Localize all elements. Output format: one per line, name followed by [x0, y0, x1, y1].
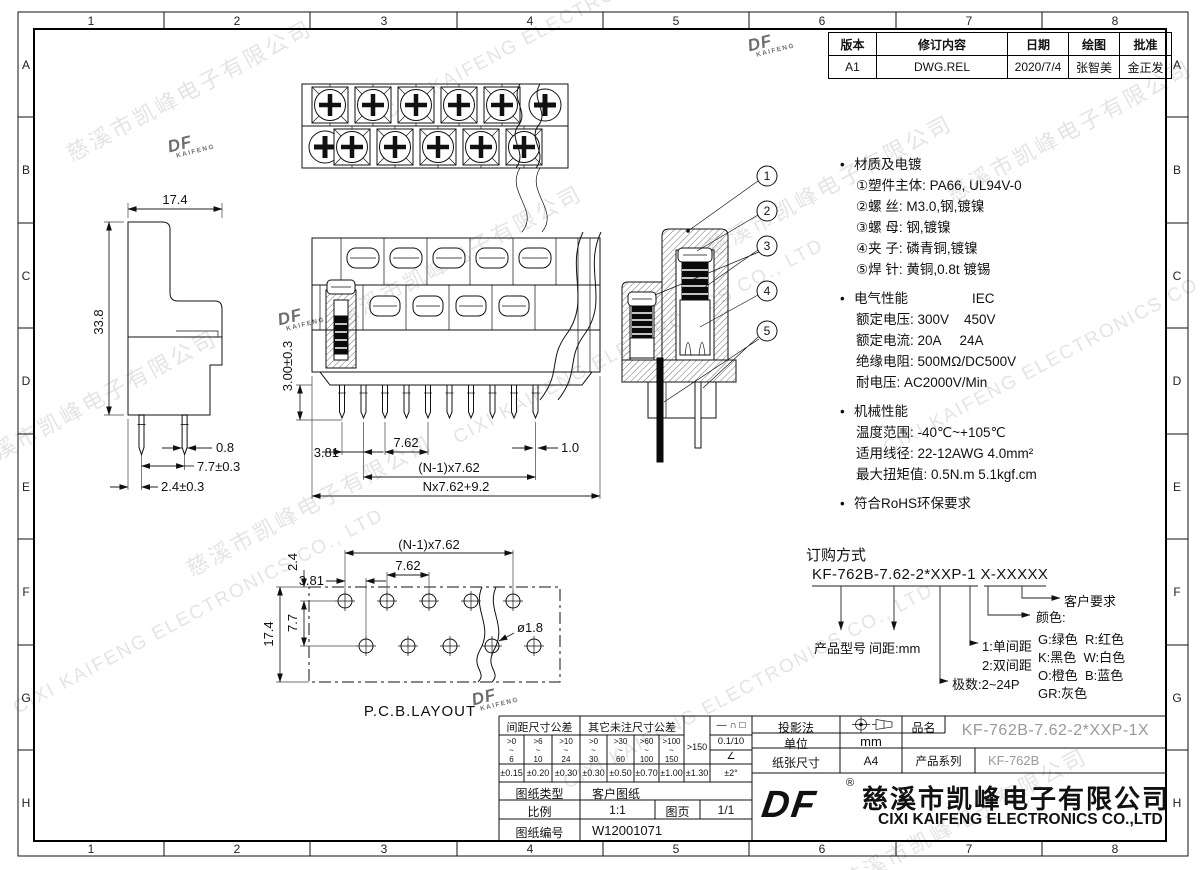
svg-text:3: 3: [381, 14, 388, 28]
bullet-icon: •: [840, 493, 854, 514]
revision-date: 2020/7/4: [1008, 56, 1069, 79]
revision-header: 绘图: [1069, 33, 1120, 56]
svg-text:1: 1: [88, 842, 95, 856]
dim-label: 17.4: [261, 621, 276, 646]
front-view: 3.81 7.62 1.0 (N-1)x7.62 Nx7.62+9.2 3.00…: [280, 232, 601, 499]
dim-label: (N-1)x7.62: [418, 460, 479, 475]
scale-value: 1:1: [580, 803, 655, 817]
svg-text:6: 6: [819, 842, 826, 856]
projection-symbol: [852, 716, 892, 733]
tol-symbols: — ∩ □: [710, 720, 752, 731]
revision-header: 批准: [1120, 33, 1172, 56]
dim-label: 3.81: [314, 445, 339, 460]
rohs-section: • 符合RoHS环保要求: [840, 493, 1185, 514]
material-item: ①塑件主体: PA66, UL94V-0: [840, 175, 1185, 196]
tol-other-header: 其它未注尺寸公差: [580, 719, 684, 735]
part-name-label: 品名: [902, 719, 945, 736]
tol-range: >100 ~ 150: [659, 737, 684, 764]
revision-table: 版本 修订内容 日期 绘图 批准 A1 DWG.REL 2020/7/4 张智美…: [828, 32, 1172, 79]
svg-text:3: 3: [381, 842, 388, 856]
ordering-color-option: O:橙色 B:蓝色: [1038, 665, 1123, 684]
drawing-no-label: 图纸编号: [499, 824, 580, 841]
revision-row: A1 DWG.REL 2020/7/4 张智美 金正发: [829, 56, 1172, 79]
dim-label: 33.8: [91, 309, 106, 334]
svg-text:5: 5: [673, 14, 680, 28]
side-view: 17.4 33.8 0.8 7.7±0.3 2.4±0.3: [91, 192, 240, 494]
tol-range: >30 ~ 60: [607, 737, 634, 764]
paper-label: 纸张尺寸: [752, 754, 840, 771]
plan-view: [302, 84, 568, 232]
svg-text:8: 8: [1112, 14, 1119, 28]
mechanical-title: 机械性能: [854, 401, 908, 422]
svg-text:5: 5: [764, 324, 771, 338]
svg-text:A: A: [1173, 58, 1181, 72]
tol-pitch-header: 间距尺寸公差: [500, 719, 579, 735]
bullet-icon: •: [840, 288, 854, 309]
svg-text:A: A: [22, 58, 30, 72]
svg-text:2: 2: [764, 204, 771, 218]
drawing-no-value: W12001071: [592, 823, 662, 838]
tol-value: ±1.00: [659, 768, 684, 778]
svg-text:2: 2: [234, 14, 241, 28]
svg-text:D: D: [22, 374, 31, 388]
ordering-color-label: 颜色:: [1036, 607, 1066, 626]
revision-version: A1: [829, 56, 877, 79]
material-item: ⑤焊 针: 黄铜,0.8t 镀锡: [840, 259, 1185, 280]
svg-text:G: G: [1172, 691, 1181, 705]
rohs-note: 符合RoHS环保要求: [854, 493, 971, 514]
drawing-sheet: 慈溪市凯峰电子有限公司 CIXI KAIFENG ELECTRONICS CO.…: [0, 0, 1200, 870]
ordering-model-label: 产品型号: [814, 638, 866, 657]
svg-text:4: 4: [764, 284, 771, 298]
tol-flatness: 0.1/10: [710, 736, 752, 747]
dim-label: 2.4±0.3: [161, 479, 204, 494]
electrical-section: • 电气性能 IEC 额定电压: 300V 450V 额定电流: 20A 24A…: [840, 288, 1185, 393]
ordering-color-option: G:绿色 R:红色: [1038, 629, 1124, 648]
ordering-poles-label: 极数:2~24P: [952, 674, 1020, 693]
ordering-code: KF-762B-7.62-2*XXP-1 X-XXXXX: [812, 566, 1048, 583]
front-view-section: [326, 280, 356, 368]
ordering-title: 订购方式: [806, 544, 866, 565]
section-view: 1 2 3 4 5: [622, 166, 777, 462]
tol-range: >10 ~ 24: [552, 737, 580, 764]
tol-range: >0 ~ 6: [499, 737, 524, 764]
electrical-item: 耐电压: AC2000V/Min: [840, 372, 1185, 393]
material-item: ④夹 子: 磷青铜,镀镍: [840, 238, 1185, 259]
svg-text:3: 3: [764, 239, 771, 253]
tol-range: >0 ~ 30: [580, 737, 607, 764]
dim-label: 7.62: [393, 435, 418, 450]
mechanical-item: 最大扭矩值: 0.5N.m 5.1kgf.cm: [840, 464, 1185, 485]
dim-label: 1.0: [561, 440, 579, 455]
tol-angle-symbol: ∠: [710, 751, 752, 762]
dim-label: 17.4: [162, 192, 187, 207]
svg-text:F: F: [1173, 585, 1180, 599]
bullet-icon: •: [840, 401, 854, 422]
ordering-pitch-label: 间距:mm: [869, 638, 920, 657]
svg-text:4: 4: [527, 842, 534, 856]
company-name-en: CIXI KAIFENG ELECTRONICS CO.,LTD: [878, 811, 1163, 829]
svg-text:1: 1: [764, 169, 771, 183]
revision-content: DWG.REL: [877, 56, 1008, 79]
ordering-row1-label: 1:单间距: [982, 636, 1032, 655]
electrical-item: 绝缘电阻: 500MΩ/DC500V: [840, 351, 1185, 372]
dim-label: 7.62: [395, 558, 420, 573]
material-item: ②螺 丝: M3.0,钢,镀镍: [840, 196, 1185, 217]
bullet-icon: •: [840, 154, 854, 175]
electrical-item: 额定电流: 20A 24A: [840, 330, 1185, 351]
dim-label: 7.7±0.3: [197, 459, 240, 474]
scale-label: 比例: [499, 803, 580, 820]
mechanical-item: 温度范围: -40℃~+105℃: [840, 422, 1185, 443]
mechanical-item: 适用线径: 22-12AWG 4.0mm²: [840, 443, 1185, 464]
tol-value: ±0.30: [552, 768, 580, 778]
projection-label: 投影法: [752, 719, 840, 736]
revision-approved-by: 金正发: [1120, 56, 1172, 79]
series-label: 产品系列: [902, 753, 975, 769]
ordering-color-option: GR:灰色: [1038, 683, 1087, 702]
svg-text:B: B: [22, 163, 30, 177]
mechanical-section: • 机械性能 温度范围: -40℃~+105℃ 适用线径: 22-12AWG 4…: [840, 401, 1185, 485]
ordering-color-option: K:黑色 W:白色: [1038, 647, 1125, 666]
svg-text:5: 5: [673, 842, 680, 856]
tol-range: >60 ~ 100: [634, 737, 659, 764]
paper-value: A4: [840, 754, 902, 768]
svg-text:G: G: [21, 691, 30, 705]
tol-value: ±0.20: [524, 768, 552, 778]
dim-label: 3.81: [299, 573, 324, 588]
svg-text:7: 7: [966, 842, 973, 856]
tol-value: ±0.15: [499, 768, 524, 778]
tol-value: ±1.30: [684, 768, 710, 778]
dim-label: 2.4: [285, 553, 300, 571]
svg-text:E: E: [22, 480, 30, 494]
svg-text:C: C: [22, 269, 31, 283]
svg-text:2: 2: [234, 842, 241, 856]
registered-mark-icon: ®: [846, 777, 854, 789]
tol-over-range: >150: [684, 742, 710, 752]
dim-label: 7.7: [285, 614, 300, 632]
dim-label: Nx7.62+9.2: [423, 479, 490, 494]
svg-text:8: 8: [1112, 842, 1119, 856]
material-section: • 材质及电镀 ①塑件主体: PA66, UL94V-0 ②螺 丝: M3.0,…: [840, 154, 1185, 280]
material-title: 材质及电镀: [854, 154, 922, 175]
page-label: 图页: [655, 803, 700, 820]
revision-header-row: 版本 修订内容 日期 绘图 批准: [829, 33, 1172, 56]
unit-label: 单位: [752, 735, 840, 752]
revision-drawn-by: 张智美: [1069, 56, 1120, 79]
sheet-type-value: 客户图纸: [592, 785, 640, 802]
revision-header: 版本: [829, 33, 877, 56]
svg-text:7: 7: [966, 14, 973, 28]
tol-value: ±0.30: [580, 768, 607, 778]
dim-label: 0.8: [216, 440, 234, 455]
tol-value: ±0.50: [607, 768, 634, 778]
ordering-row2-label: 2:双间距: [982, 655, 1032, 674]
pcb-caption: P.C.B.LAYOUT: [364, 703, 476, 720]
dim-label: ø1.8: [517, 620, 543, 635]
svg-text:H: H: [1173, 796, 1182, 810]
electrical-item: 额定电压: 300V 450V: [840, 309, 1185, 330]
pcb-layout-view: (N-1)x7.62 7.62 3.81 17.4 7.7 2.4 ø1.8 P…: [261, 537, 560, 720]
series-value: KF-762B: [988, 753, 1039, 768]
electrical-standard: IEC: [972, 288, 995, 309]
sheet-type-label: 图纸类型: [499, 785, 580, 802]
svg-text:H: H: [22, 796, 31, 810]
part-name-value: KF-762B-7.62-2*XXP-1X: [948, 722, 1163, 740]
tol-angle-value: ±2°: [710, 768, 752, 778]
revision-header: 修订内容: [877, 33, 1008, 56]
electrical-title: 电气性能: [854, 288, 908, 309]
tol-range: >6 ~ 10: [524, 737, 552, 764]
company-logo: DF: [759, 784, 820, 827]
ordering-custom-label: 客户要求: [1064, 591, 1116, 610]
page-value: 1/1: [700, 803, 752, 817]
unit-value: mm: [840, 734, 902, 749]
svg-text:1: 1: [88, 14, 95, 28]
svg-text:6: 6: [819, 14, 826, 28]
tol-value: ±0.70: [634, 768, 659, 778]
svg-text:4: 4: [527, 14, 534, 28]
dim-label: (N-1)x7.62: [398, 537, 459, 552]
dim-label: 3.00±0.3: [280, 341, 295, 392]
notes-block: • 材质及电镀 ①塑件主体: PA66, UL94V-0 ②螺 丝: M3.0,…: [840, 154, 1185, 522]
revision-header: 日期: [1008, 33, 1069, 56]
svg-text:F: F: [22, 585, 29, 599]
material-item: ③螺 母: 钢,镀镍: [840, 217, 1185, 238]
